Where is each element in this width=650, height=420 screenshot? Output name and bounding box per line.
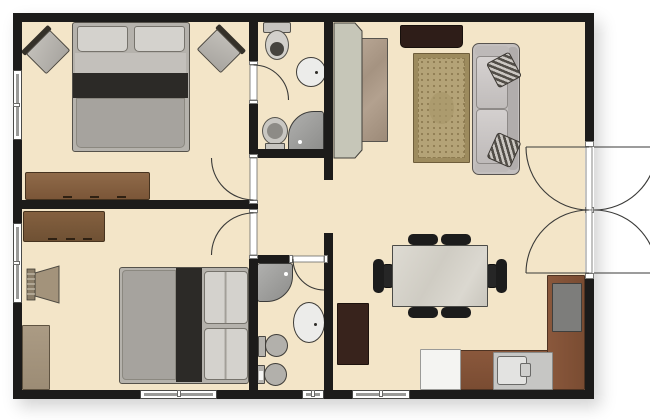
- window-bathroom2-bottom: [302, 390, 324, 399]
- window-mullion: [13, 261, 20, 265]
- door-bedroom1-jamb: [249, 200, 258, 204]
- floor-plan: [0, 0, 650, 420]
- door-ensuite-jamb: [249, 100, 258, 104]
- window-mullion: [311, 390, 315, 397]
- entry-double-door-jamb: [585, 273, 594, 279]
- door-bedroom1-jamb: [249, 154, 258, 158]
- entry-double-door-jamb: [585, 141, 594, 147]
- door-bathroom2-jamb: [289, 255, 293, 263]
- door-bedroom2-jamb: [249, 209, 258, 213]
- window-layer: [0, 0, 650, 420]
- window-mullion: [177, 390, 181, 397]
- door-ensuite-jamb: [249, 61, 258, 65]
- window-mullion: [379, 390, 383, 397]
- window-dining-bottom: [352, 390, 410, 399]
- window-bedroom2-bottom: [140, 390, 217, 399]
- door-bathroom2-jamb: [324, 255, 328, 263]
- door-bedroom2-jamb: [249, 255, 258, 259]
- entry-double-door-jamb: [585, 207, 594, 213]
- window-bedroom2-left: [13, 223, 22, 303]
- window-mullion: [13, 103, 20, 107]
- window-bedroom1-left: [13, 70, 22, 140]
